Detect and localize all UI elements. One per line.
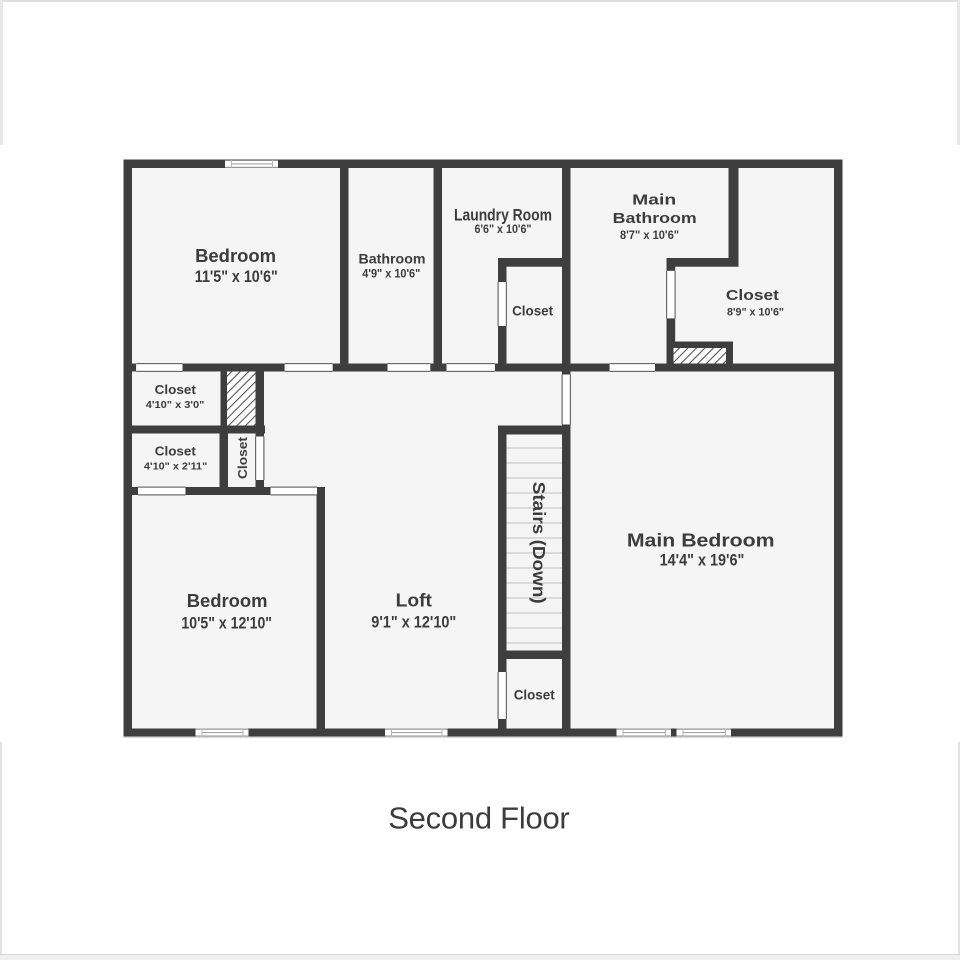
svg-text:8'9" x 10'6": 8'9" x 10'6" — [727, 306, 784, 318]
svg-text:Main: Main — [632, 192, 676, 209]
svg-text:Closet: Closet — [235, 436, 250, 479]
svg-text:Bathroom: Bathroom — [359, 251, 426, 266]
svg-text:Bedroom: Bedroom — [187, 590, 268, 611]
svg-text:4'9" x 10'6": 4'9" x 10'6" — [362, 269, 420, 281]
svg-text:Closet: Closet — [514, 688, 555, 703]
svg-text:Bedroom: Bedroom — [195, 245, 276, 266]
svg-text:6'6" x 10'6": 6'6" x 10'6" — [475, 224, 532, 236]
svg-text:Stairs (Down): Stairs (Down) — [529, 482, 549, 604]
svg-text:Laundry Room: Laundry Room — [454, 207, 552, 225]
svg-text:4'10" x 3'0": 4'10" x 3'0" — [146, 400, 205, 411]
svg-text:8'7" x 10'6": 8'7" x 10'6" — [620, 230, 679, 242]
svg-text:Closet: Closet — [155, 443, 197, 458]
svg-text:Bathroom: Bathroom — [613, 210, 697, 227]
svg-text:Closet: Closet — [512, 304, 553, 319]
svg-text:Second Floor: Second Floor — [388, 800, 570, 835]
svg-text:Closet: Closet — [726, 287, 779, 304]
svg-text:11'5" x 10'6": 11'5" x 10'6" — [195, 268, 278, 286]
svg-text:14'4" x 19'6": 14'4" x 19'6" — [660, 551, 745, 570]
svg-text:9'1" x 12'10": 9'1" x 12'10" — [371, 614, 456, 632]
svg-text:4'10" x 2'11": 4'10" x 2'11" — [144, 462, 208, 473]
svg-text:Main Bedroom: Main Bedroom — [627, 530, 775, 551]
svg-text:10'5" x 12'10": 10'5" x 12'10" — [181, 615, 272, 633]
svg-text:Closet: Closet — [155, 382, 197, 397]
svg-text:Loft: Loft — [396, 589, 432, 610]
